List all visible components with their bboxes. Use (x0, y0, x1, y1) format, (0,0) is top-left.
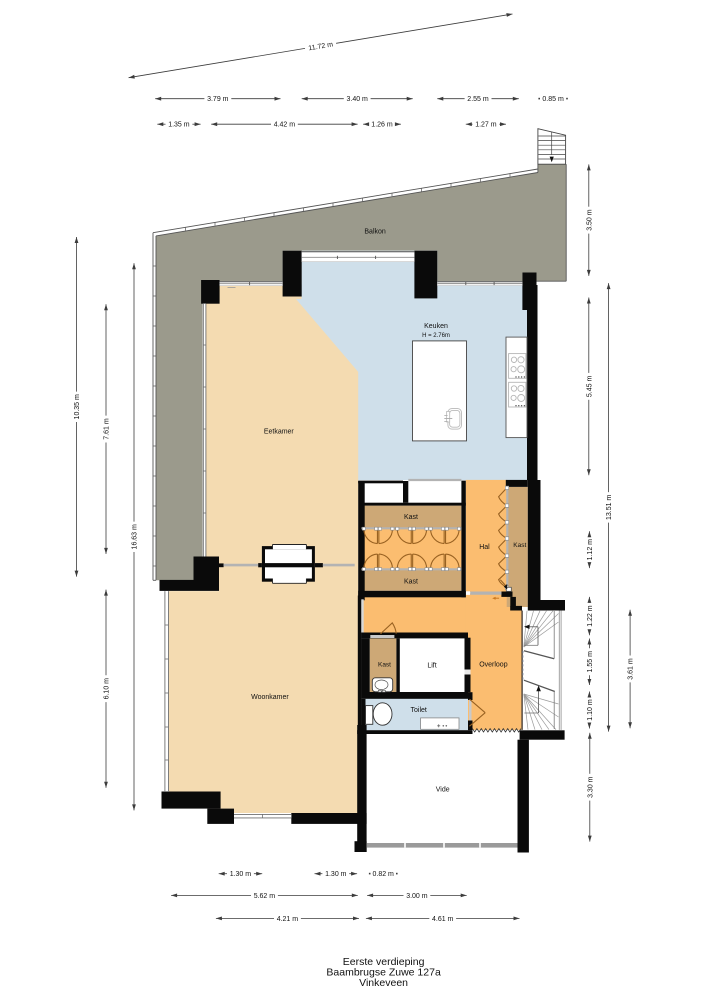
svg-text:2.55 m: 2.55 m (467, 96, 489, 103)
svg-text:1.12 m: 1.12 m (587, 539, 594, 561)
svg-text:Vinkeveen: Vinkeveen (359, 977, 408, 989)
svg-text:0.85 m: 0.85 m (542, 96, 564, 103)
svg-text:3.50 m: 3.50 m (586, 209, 593, 231)
svg-text:1.26 m: 1.26 m (371, 122, 393, 129)
svg-text:1.22 m: 1.22 m (587, 605, 594, 627)
svg-text:3.40 m: 3.40 m (346, 96, 368, 103)
svg-text:7.61 m: 7.61 m (104, 418, 111, 440)
svg-text:4.61 m: 4.61 m (432, 916, 454, 923)
svg-text:Hal: Hal (479, 544, 490, 551)
svg-text:1.10 m: 1.10 m (587, 699, 594, 721)
svg-text:Kast: Kast (378, 662, 391, 669)
svg-text:Kast: Kast (513, 542, 526, 549)
svg-text:1.55 m: 1.55 m (587, 651, 594, 673)
svg-text:3.30 m: 3.30 m (587, 776, 594, 798)
svg-text:13.51 m: 13.51 m (606, 495, 613, 520)
svg-text:1.30 m: 1.30 m (325, 871, 347, 878)
svg-text:Lift: Lift (427, 662, 436, 669)
svg-text:10.35 m: 10.35 m (74, 394, 81, 419)
svg-text:0.82 m: 0.82 m (372, 871, 394, 878)
svg-text:Woonkamer: Woonkamer (251, 694, 289, 701)
svg-text:4.42 m: 4.42 m (274, 122, 296, 129)
svg-text:11.72 m: 11.72 m (308, 41, 334, 52)
svg-text:Kast: Kast (404, 578, 418, 585)
svg-text:Eetkamer: Eetkamer (264, 429, 295, 436)
svg-text:3.79 m: 3.79 m (207, 96, 229, 103)
svg-text:Toilet: Toilet (411, 707, 427, 714)
svg-text:3.00 m: 3.00 m (406, 893, 428, 900)
svg-text:Kast: Kast (404, 514, 418, 521)
svg-text:4.21 m: 4.21 m (277, 916, 299, 923)
svg-text:1.27 m: 1.27 m (475, 122, 497, 129)
svg-text:H = 2.76m: H = 2.76m (422, 333, 450, 339)
svg-text:1.30 m: 1.30 m (230, 871, 252, 878)
svg-text:3.61 m: 3.61 m (628, 658, 635, 680)
svg-text:16.63 m: 16.63 m (132, 524, 139, 549)
svg-text:Balkon: Balkon (364, 228, 386, 235)
svg-text:Vide: Vide (436, 787, 450, 794)
svg-text:5.45 m: 5.45 m (586, 376, 593, 398)
svg-text:1.35 m: 1.35 m (168, 122, 190, 129)
svg-text:Keuken: Keuken (424, 323, 448, 330)
svg-text:5.62 m: 5.62 m (254, 893, 276, 900)
svg-text:6.10 m: 6.10 m (104, 678, 111, 700)
svg-text:Overloop: Overloop (479, 661, 508, 668)
